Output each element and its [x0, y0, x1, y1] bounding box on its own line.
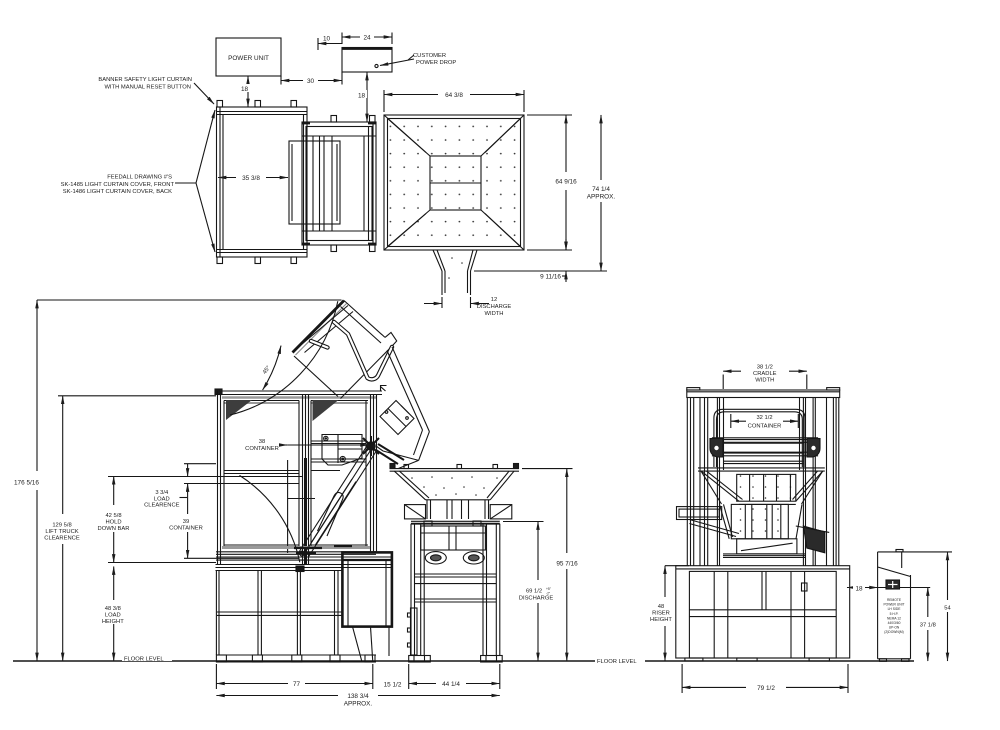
svg-text:POWER UNIT: POWER UNIT [883, 603, 904, 607]
svg-text:30: 30 [307, 78, 315, 85]
svg-text:RISER: RISER [652, 611, 670, 617]
svg-text:POWER DROP: POWER DROP [416, 60, 456, 66]
svg-text:38 1/2: 38 1/2 [757, 365, 773, 371]
svg-text:LOAD: LOAD [154, 496, 170, 502]
svg-text:POWER UNIT: POWER UNIT [228, 55, 269, 62]
svg-text:79 1/2: 79 1/2 [757, 685, 775, 692]
svg-text:74 1/4: 74 1/4 [592, 186, 610, 193]
svg-text:CUSTOMER: CUSTOMER [413, 53, 446, 59]
svg-text:64 3/8: 64 3/8 [445, 92, 463, 99]
svg-text:FLOOR LEVEL: FLOOR LEVEL [597, 659, 637, 665]
svg-text:SK-1485 LIGHT CURTAIN COVER, F: SK-1485 LIGHT CURTAIN COVER, FRONT [61, 182, 175, 188]
svg-text:15 1/2: 15 1/2 [384, 681, 402, 688]
svg-text:APPROX.: APPROX. [344, 701, 373, 708]
svg-text:39: 39 [183, 519, 189, 525]
svg-text:18: 18 [855, 586, 863, 593]
svg-text:HEIGHT: HEIGHT [102, 619, 124, 625]
svg-text:64 9/16: 64 9/16 [555, 179, 577, 186]
svg-text:77: 77 [293, 681, 301, 688]
svg-text:NEMA 12: NEMA 12 [887, 616, 901, 620]
svg-text:CLEARENCE: CLEARENCE [144, 503, 180, 509]
svg-text:18: 18 [241, 86, 249, 93]
svg-text:CRADLE: CRADLE [753, 371, 777, 377]
svg-text:44 1/4: 44 1/4 [442, 681, 460, 688]
svg-text:CLEARENCE: CLEARENCE [44, 536, 80, 542]
svg-text:DOWN BAR: DOWN BAR [98, 526, 130, 532]
svg-text:FEEDALL DRAWING #'S: FEEDALL DRAWING #'S [107, 175, 172, 181]
svg-text:10: 10 [323, 36, 331, 43]
svg-text:DISCHARGE: DISCHARGE [477, 304, 512, 310]
svg-text:HOLD: HOLD [105, 520, 121, 526]
svg-text:42 5/8: 42 5/8 [105, 513, 121, 519]
svg-text:440/3/60: 440/3/60 [888, 621, 901, 625]
svg-text:129 5/8: 129 5/8 [52, 523, 71, 529]
svg-text:+5": +5" [546, 587, 552, 591]
svg-text:24: 24 [363, 35, 371, 42]
svg-text:CONTAINER: CONTAINER [245, 446, 279, 452]
svg-text:HEIGHT: HEIGHT [650, 617, 672, 623]
svg-text:69 1/2: 69 1/2 [526, 589, 542, 595]
svg-text:48: 48 [658, 604, 664, 610]
svg-text:(2)DOWN(M): (2)DOWN(M) [884, 630, 903, 634]
svg-text:138 3/4: 138 3/4 [347, 693, 369, 700]
svg-text:12: 12 [491, 297, 497, 303]
svg-text:LOAD: LOAD [105, 613, 121, 619]
svg-text:38: 38 [259, 439, 265, 445]
svg-text:REMOTE: REMOTE [887, 598, 902, 602]
svg-text:DISCHARGE: DISCHARGE [519, 596, 554, 602]
svg-text:18: 18 [358, 93, 366, 100]
svg-text:FLOOR LEVEL: FLOOR LEVEL [124, 657, 164, 663]
svg-text:WIDTH: WIDTH [485, 311, 504, 317]
svg-text:CONTAINER: CONTAINER [169, 526, 203, 532]
svg-text:176 5/16: 176 5/16 [14, 480, 39, 487]
svg-text:APPROX.: APPROX. [587, 194, 616, 201]
svg-text:37 1/8: 37 1/8 [920, 623, 936, 629]
svg-text:UP-ON: UP-ON [889, 626, 900, 630]
svg-text:95 7/16: 95 7/16 [556, 561, 578, 568]
svg-text:LH SIDE: LH SIDE [888, 607, 902, 611]
svg-text:48 3/8: 48 3/8 [105, 606, 121, 612]
svg-text:BANNER SAFETY LIGHT CURTAIN: BANNER SAFETY LIGHT CURTAIN [98, 77, 192, 83]
svg-text:9 11/16: 9 11/16 [540, 274, 561, 281]
svg-text:CONTAINER: CONTAINER [748, 423, 782, 429]
svg-text:54: 54 [944, 606, 951, 612]
svg-text:SK-1486 LIGHT CURTAIN COVER, B: SK-1486 LIGHT CURTAIN COVER, BACK [63, 189, 172, 195]
svg-text:LIFT TRUCK: LIFT TRUCK [45, 529, 78, 535]
svg-text:45°: 45° [262, 365, 272, 376]
svg-text:35 3/8: 35 3/8 [242, 175, 260, 182]
svg-text:WITH MANUAL RESET BUTTON: WITH MANUAL RESET BUTTON [104, 85, 191, 91]
svg-text:WIDTH: WIDTH [755, 378, 774, 384]
svg-text:32 1/2: 32 1/2 [756, 415, 772, 421]
svg-text:5 H.P.: 5 H.P. [890, 612, 899, 616]
svg-text:3 3/4: 3 3/4 [155, 490, 169, 496]
